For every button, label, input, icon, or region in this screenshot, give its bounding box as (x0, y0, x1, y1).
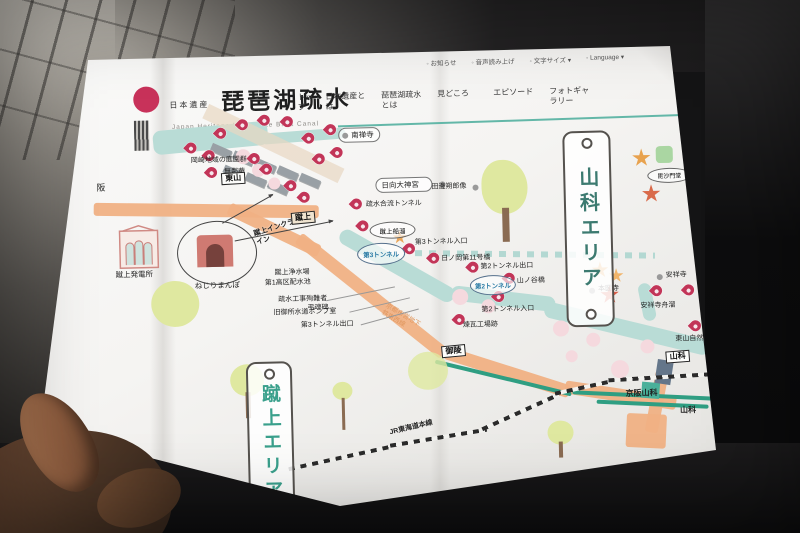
nav-highlights: 見どころ (437, 88, 483, 110)
tree-icon (151, 280, 200, 327)
flyer-content: 日本遺産 琵琶湖疏水 Japan Heritage | The Lake Biw… (88, 32, 740, 527)
sakura-icon (452, 289, 468, 305)
japan-heritage-logo-icon (133, 86, 160, 113)
label-tanabe-statue: 田邊朔郎像 (431, 183, 466, 193)
station-keage: 蹴上 (291, 211, 316, 225)
label-himukai: 日向大神宮 (375, 177, 432, 193)
station-misasagi: 御陵 (441, 344, 466, 358)
nav-readaloud: 音声読み上げ (471, 56, 514, 67)
tree-icon (332, 382, 353, 432)
station-higashiyama: 東山 (221, 172, 246, 185)
sakura-icon (586, 333, 600, 347)
nav-about-heritage: 日本遺産とは (325, 91, 371, 113)
sakura-icon (611, 360, 629, 378)
nav-about-canal: 琵琶湖疏水とは (381, 90, 427, 112)
temple-dot-icon (342, 133, 348, 139)
pin-higashiyama-shizen (688, 318, 704, 334)
label-gouryu-tunnel: 疏水合流トンネル (366, 200, 422, 210)
area-sign-yamashina: 山科エリア (562, 130, 615, 327)
print-mark (134, 121, 150, 151)
label-yamanotani-bridge: 山ノ谷橋 (517, 277, 545, 286)
label-tunnel2-out: 第2トンネル出口 (480, 262, 533, 272)
maple-leaf-icon (632, 148, 651, 167)
nav-episodes: エピソード (493, 87, 539, 109)
header-divider (338, 114, 686, 128)
area-sign-yamashina-text: 山科エリア (573, 166, 605, 292)
roof-icon (299, 173, 321, 189)
label-tunnel2-in: 第2トンネル入口 (481, 305, 534, 315)
label-okazaki-gardens: 岡崎地域の庭園群 (191, 156, 247, 166)
tree-icon (656, 146, 673, 163)
power-plant-icon (118, 224, 159, 269)
label-tunnel3-out: 第3トンネル出口 (301, 321, 354, 331)
sign-knob (263, 369, 274, 380)
utility-nav: お知らせ 音声読み上げ 文字サイズ ▾ Language ▾ (426, 53, 624, 68)
tree-icon (481, 159, 529, 246)
label-tunnel3-in: 第3トンネル入口 (415, 238, 468, 248)
jr-line-label: JR東海道本線 (389, 419, 434, 438)
map-pin (204, 165, 220, 181)
subway-line-label: 京都市営地下鉄東西線 (380, 302, 426, 338)
street-photo-scene: 日本遺産 琵琶湖疏水 Japan Heritage | The Lake Biw… (0, 0, 800, 533)
pin-anshoji (681, 282, 697, 298)
temple-dot-icon (657, 274, 663, 280)
tree-icon (547, 420, 574, 463)
sign-knob (581, 138, 592, 149)
nav-language: Language ▾ (586, 53, 624, 64)
map-pin (329, 145, 345, 161)
sakura-icon (566, 350, 578, 362)
maple-leaf-icon (642, 184, 661, 203)
station-building-block (626, 413, 668, 449)
label-pump-room: 旧御所水道ポンプ室 (273, 308, 336, 318)
nav-gallery: フォトギャラリー (549, 86, 595, 108)
pin-gouryu-tunnel (349, 196, 365, 212)
label-anshoji: 安祥寺 (666, 271, 687, 280)
nav-top: トップ (297, 92, 316, 113)
statue-dot-icon (472, 185, 478, 191)
pin-keage-funadamari (355, 218, 371, 234)
label-renga-factory: 煉瓦工場跡 (463, 321, 498, 331)
label-keage-power: 蹴上発電所 (115, 269, 153, 279)
station-yamashina-subway: 山科 (665, 350, 690, 364)
label-higashiyama-shizen: 東山自然 (675, 335, 703, 344)
nejirimanpo-arch-icon (197, 235, 234, 268)
sakura-icon (640, 339, 654, 353)
sakura-icon (553, 320, 569, 336)
label-bishamondo: 毘沙門堂 (647, 167, 691, 183)
sign-knob (585, 309, 596, 320)
label-keage-funadamari: 蹴上船溜 (369, 221, 415, 239)
nav-fontsize: 文字サイズ ▾ (529, 54, 571, 65)
road (94, 203, 319, 218)
site-badge: 日本遺産 (169, 99, 209, 111)
jr-line (288, 444, 392, 471)
label-keage-josuijo: 蹴上浄水場 (274, 269, 309, 279)
label-haisuichi: 第1高区配水池 (265, 279, 311, 289)
label-anshoji-funadamari: 安祥寺舟溜 (640, 302, 675, 312)
station-keihan-yamashina: 京阪山科 (625, 388, 657, 399)
keihan-partial-label: 阪 (96, 183, 105, 194)
nav-notice: お知らせ (426, 57, 456, 68)
roof-icon (276, 165, 298, 181)
map-pin (296, 189, 312, 205)
station-yamashina-jr: 山科 (680, 405, 696, 415)
